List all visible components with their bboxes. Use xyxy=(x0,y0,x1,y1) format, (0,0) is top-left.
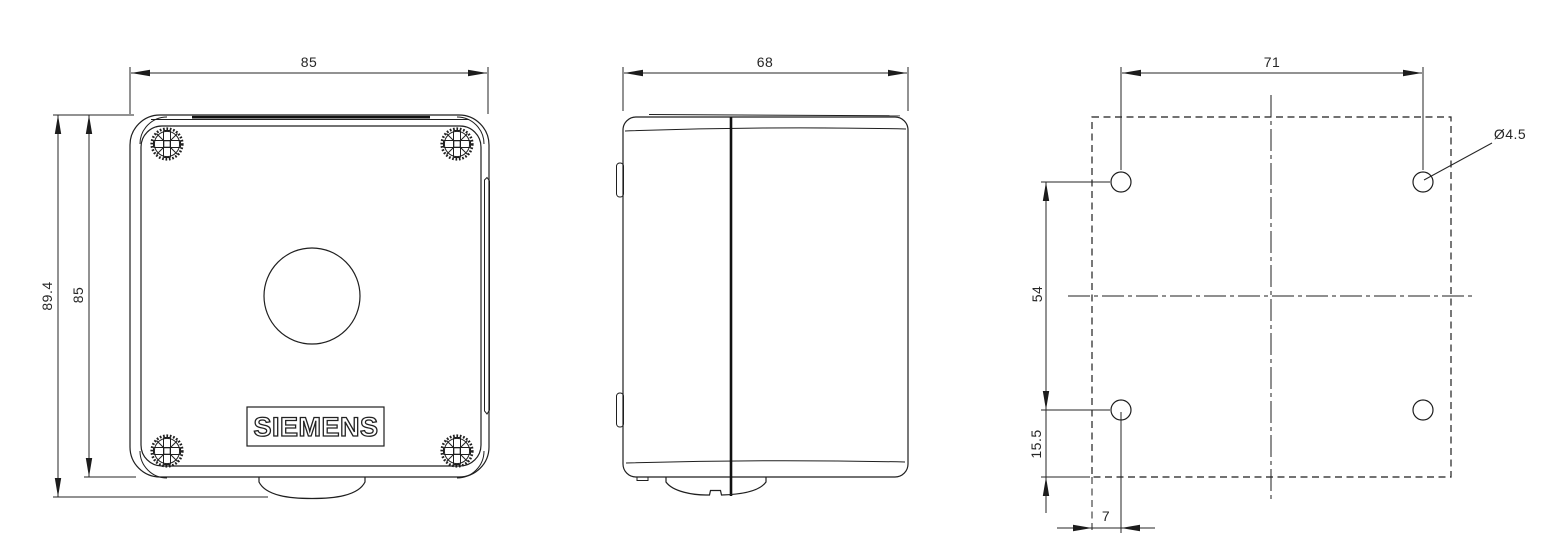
dim-hole-offset-side: 7 xyxy=(1102,508,1110,524)
side-cable-dome xyxy=(666,477,766,495)
dim-front-height-body: 85 xyxy=(70,287,86,304)
screw-bottom-right xyxy=(442,436,473,467)
hole-diameter-leader xyxy=(1424,143,1492,180)
dim-front-height-total: 89.4 xyxy=(39,281,55,310)
mounting-hole-top-right xyxy=(1413,172,1433,192)
dim-side-depth: 68 xyxy=(757,54,774,70)
dim-front-width: 85 xyxy=(301,54,318,70)
side-bottom-seam xyxy=(626,461,905,463)
mounting-dimensions xyxy=(1041,67,1423,533)
screw-top-left xyxy=(152,129,183,160)
screw-top-right xyxy=(442,129,473,160)
mounting-view xyxy=(1068,95,1492,533)
side-lid-seam xyxy=(625,128,906,131)
dim-hole-pitch-horizontal: 71 xyxy=(1264,54,1281,70)
pushbutton-hole xyxy=(264,248,360,344)
dim-hole-offset-bottom: 15.5 xyxy=(1028,429,1044,458)
technical-drawing-canvas: 85 89.4 85 68 71 Ø4.5 54 15.5 7 SIEMENS xyxy=(0,0,1559,554)
side-dimensions xyxy=(623,67,908,111)
mounting-hole-bottom-right xyxy=(1413,400,1433,420)
dim-hole-diameter: Ø4.5 xyxy=(1494,126,1526,142)
side-top-face-edge xyxy=(649,115,900,116)
front-cable-dome xyxy=(259,477,365,499)
side-view xyxy=(617,115,909,497)
dim-hole-pitch-vertical: 54 xyxy=(1029,286,1045,303)
mounting-hole-top-left xyxy=(1111,172,1131,192)
screw-bottom-left xyxy=(152,436,183,467)
siemens-logo: SIEMENS xyxy=(248,407,384,447)
side-outline xyxy=(623,117,908,477)
drawing-linework xyxy=(0,0,1559,554)
